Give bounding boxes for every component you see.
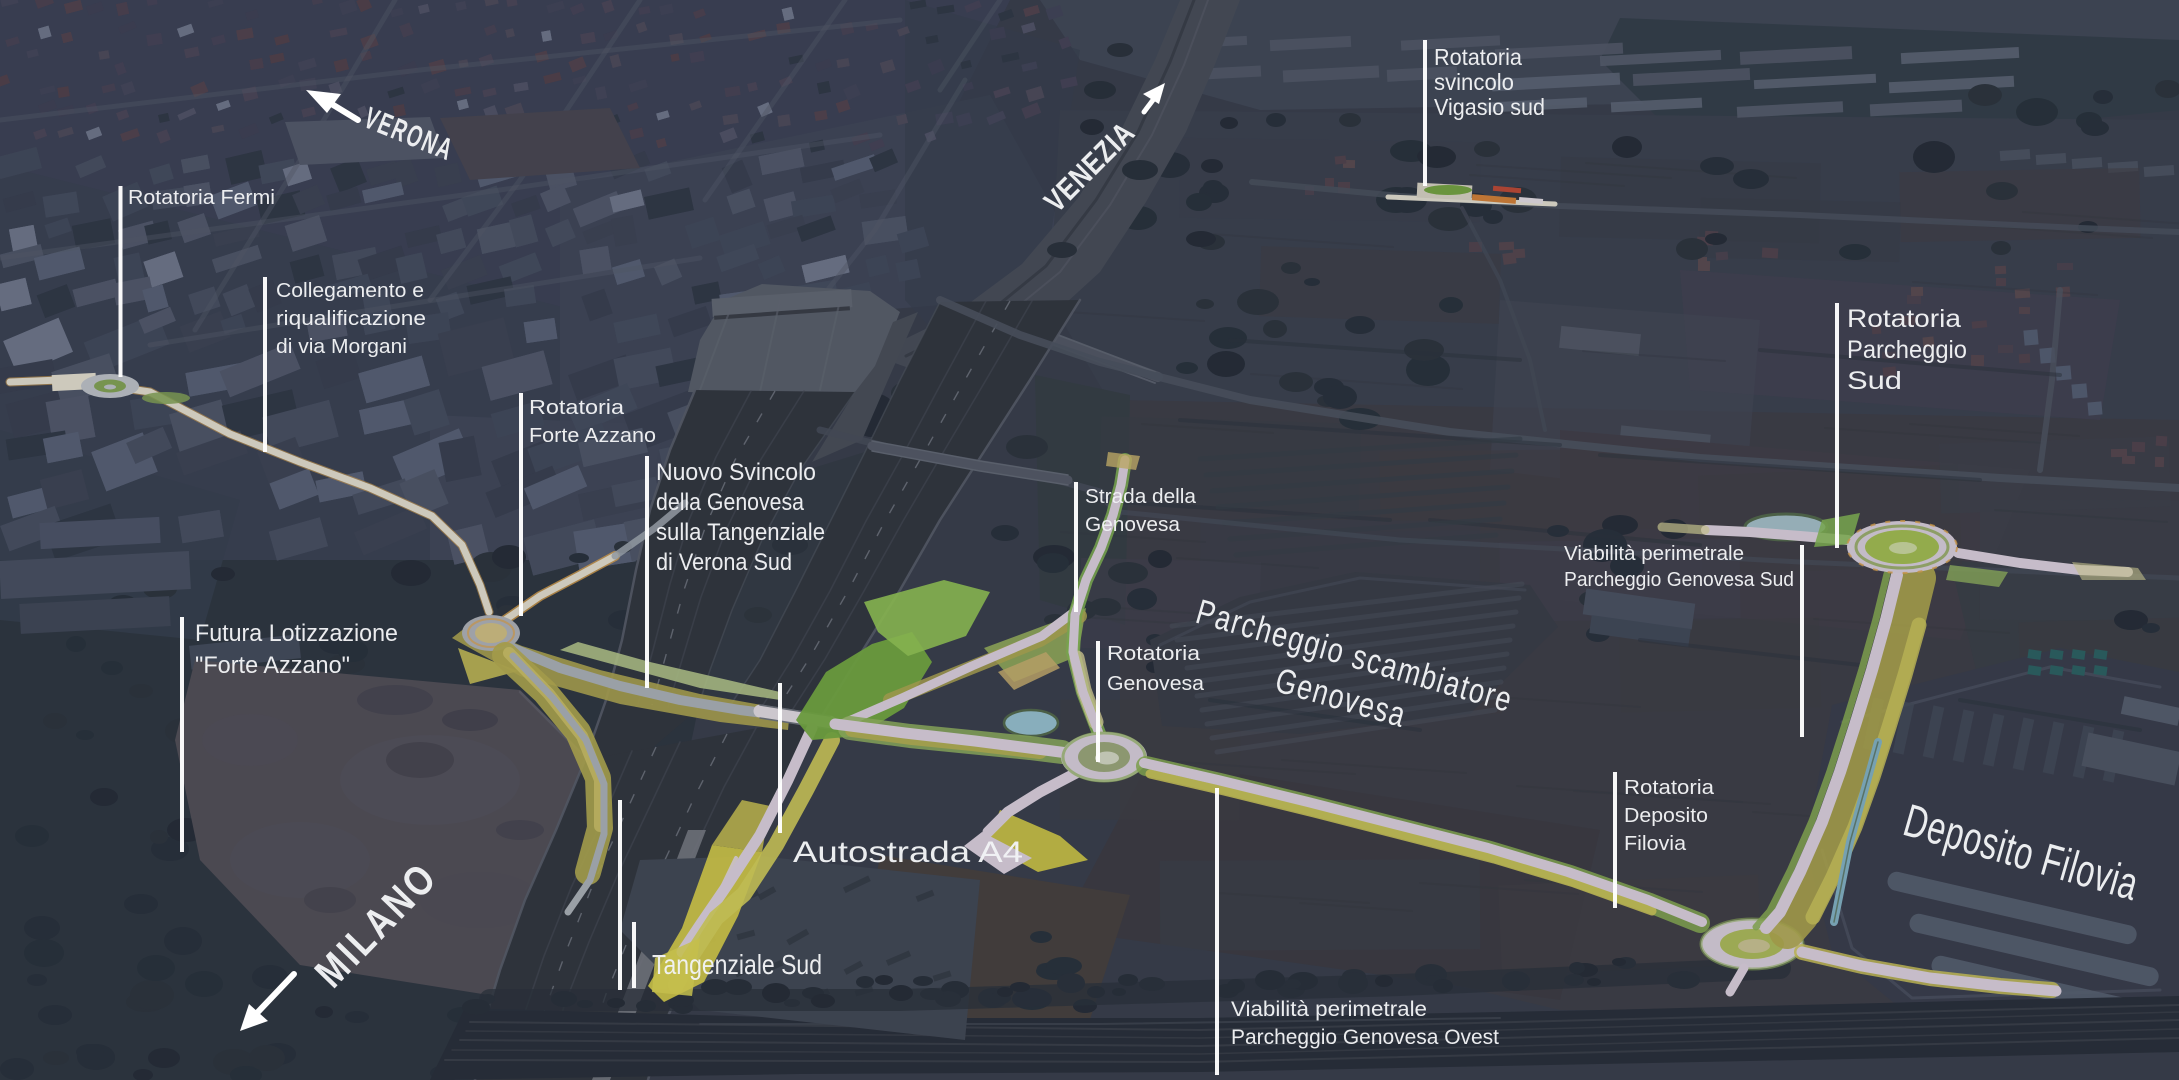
svg-text:Genovesa: Genovesa [1107,673,1205,695]
svg-text:Forte Azzano: Forte Azzano [529,425,656,447]
svg-text:Deposito: Deposito [1624,805,1708,827]
svg-text:Parcheggio Genovesa Sud: Parcheggio Genovesa Sud [1564,569,1794,591]
svg-text:Rotatoria: Rotatoria [1434,44,1522,70]
svg-text:Strada della: Strada della [1085,486,1197,508]
svg-text:Genovesa: Genovesa [1085,514,1181,536]
svg-text:della Genovesa: della Genovesa [656,489,805,516]
svg-text:Autostrada A4: Autostrada A4 [793,836,1023,869]
svg-text:di Verona Sud: di Verona Sud [656,549,792,576]
svg-text:Tangenziale Sud: Tangenziale Sud [652,949,822,980]
svg-text:Rotatoria: Rotatoria [1847,305,1961,333]
svg-text:Vigasio sud: Vigasio sud [1434,94,1545,120]
svg-text:Collegamento e: Collegamento e [276,280,424,302]
svg-text:Filovia: Filovia [1624,833,1687,855]
svg-text:Parcheggio Genovesa Ovest: Parcheggio Genovesa Ovest [1231,1026,1499,1049]
svg-text:Rotatoria: Rotatoria [529,397,625,419]
svg-text:Sud: Sud [1847,367,1902,395]
svg-text:di via Morgani: di via Morgani [276,336,407,358]
svg-text:Futura Lotizzazione: Futura Lotizzazione [195,620,398,647]
svg-text:Rotatoria: Rotatoria [1624,777,1715,799]
svg-text:svincolo: svincolo [1434,69,1514,95]
svg-text:riqualificazione: riqualificazione [276,308,426,330]
svg-text:Rotatoria Fermi: Rotatoria Fermi [128,187,275,209]
svg-text:Nuovo Svincolo: Nuovo Svincolo [656,459,816,486]
svg-text:sulla Tangenziale: sulla Tangenziale [656,519,825,546]
svg-text:Viabilità perimetrale: Viabilità perimetrale [1231,998,1427,1021]
svg-text:Viabilità perimetrale: Viabilità perimetrale [1564,543,1744,565]
svg-text:"Forte Azzano": "Forte Azzano" [195,652,350,679]
svg-text:Parcheggio: Parcheggio [1847,336,1967,364]
svg-text:Rotatoria: Rotatoria [1107,643,1201,665]
